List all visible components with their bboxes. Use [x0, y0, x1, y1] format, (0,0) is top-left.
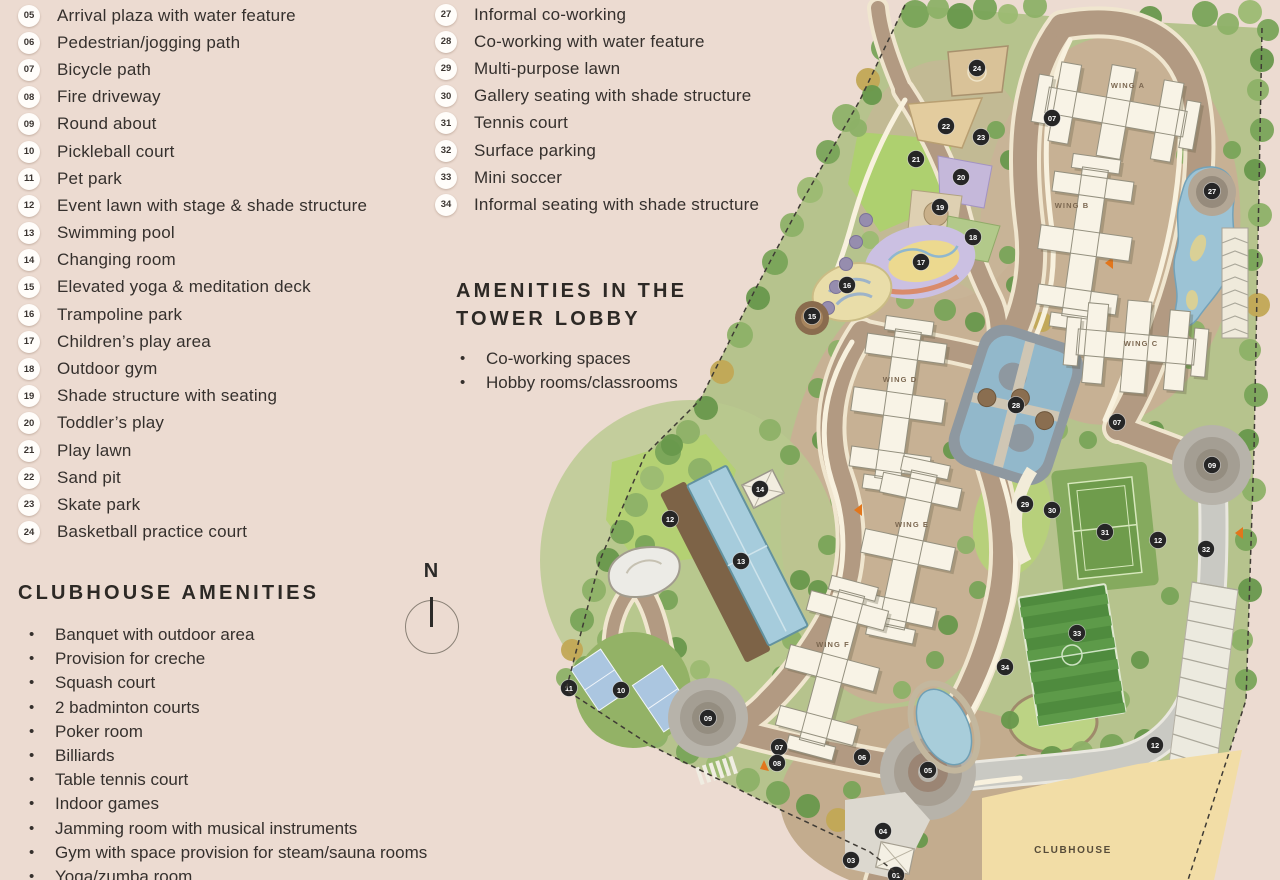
legend-number-badge: 16 [18, 304, 40, 326]
legend-item-label: Pickleball court [57, 142, 175, 162]
legend-item-label: Informal seating with shade structure [474, 195, 759, 215]
legend-number-badge: 23 [18, 494, 40, 516]
tower-lobby-title-line1: AMENITIES IN THE [456, 280, 687, 302]
legend-item: 19Shade structure with seating [18, 383, 367, 410]
legend-item: 24Basketball practice court [18, 519, 367, 546]
map-marker: 07 [771, 739, 788, 756]
map-marker: 01 [888, 867, 905, 880]
map-marker: 12 [1150, 532, 1167, 549]
clubhouse-label: CLUBHOUSE [1034, 845, 1112, 856]
legend-number-badge: 19 [18, 385, 40, 407]
clubhouse-amenities-title: CLUBHOUSE AMENITIES [18, 580, 319, 608]
legend-item-label: Play lawn [57, 441, 132, 461]
map-marker-number: 28 [1012, 401, 1020, 410]
map-marker-number: 18 [969, 233, 977, 242]
map-marker-number: 12 [1154, 536, 1162, 545]
legend-item: 17Children’s play area [18, 328, 367, 355]
legend-secondary: 27Informal co-working28Co-working with w… [435, 1, 759, 219]
legend-item: 11Pet park [18, 165, 367, 192]
map-marker-number: 05 [924, 766, 932, 775]
map-marker-number: 22 [942, 122, 950, 131]
legend-item-label: Fire driveway [57, 87, 161, 107]
map-marker: 16 [839, 277, 856, 294]
legend-item: 12Event lawn with stage & shade structur… [18, 192, 367, 219]
map-marker: 24 [969, 60, 986, 77]
legend-item-label: Swimming pool [57, 223, 175, 243]
amenity-list-item: Yoga/zumba room [27, 865, 427, 880]
amenity-list-item: Co-working spaces [458, 347, 678, 371]
amenity-list-item: Gym with space provision for steam/sauna… [27, 841, 427, 865]
map-marker-number: 07 [1113, 418, 1121, 427]
legend-item-label: Outdoor gym [57, 359, 157, 379]
legend-number-badge: 32 [435, 140, 457, 162]
map-marker: 14 [752, 481, 769, 498]
legend-item-label: Toddler’s play [57, 413, 164, 433]
legend-item-label: Elevated yoga & meditation deck [57, 277, 311, 297]
legend-item-label: Sand pit [57, 468, 121, 488]
wing-label: WING D [883, 375, 918, 384]
legend-number-badge: 31 [435, 112, 457, 134]
map-marker: 28 [1008, 397, 1025, 414]
map-marker: 32 [1198, 541, 1215, 558]
map-marker: 04 [875, 823, 892, 840]
map-marker-number: 29 [1021, 500, 1029, 509]
map-marker-number: 13 [737, 557, 745, 566]
map-marker-number: 14 [756, 485, 765, 494]
legend-number-badge: 11 [18, 168, 40, 190]
map-marker: 10 [613, 682, 630, 699]
legend-item: 21Play lawn [18, 437, 367, 464]
map-marker-number: 34 [1001, 663, 1010, 672]
legend-item-label: Multi-purpose lawn [474, 59, 620, 79]
legend-primary: 05Arrival plaza with water feature06Pede… [18, 2, 367, 546]
legend-number-badge: 13 [18, 222, 40, 244]
map-marker: 13 [733, 553, 750, 570]
tower-lobby-list: Co-working spacesHobby rooms/classrooms [458, 347, 678, 395]
legend-item: 32Surface parking [435, 137, 759, 164]
map-marker: 11 [561, 680, 578, 697]
legend-number-badge: 17 [18, 331, 40, 353]
amenity-list-item: Jamming room with musical instruments [27, 817, 427, 841]
legend-item-label: Tennis court [474, 113, 568, 133]
legend-item-label: Event lawn with stage & shade structure [57, 196, 367, 216]
site-plan-page: CLUBHOUSE WING AWING BWING CWING DWING E… [0, 0, 1280, 880]
legend-item: 07Bicycle path [18, 56, 367, 83]
legend-number-badge: 06 [18, 32, 40, 54]
map-marker: 09 [1204, 457, 1221, 474]
legend-item-label: Arrival plaza with water feature [57, 6, 296, 26]
legend-number-badge: 18 [18, 358, 40, 380]
map-marker-number: 10 [617, 686, 625, 695]
map-marker-number: 30 [1048, 506, 1056, 515]
map-marker: 09 [700, 710, 717, 727]
legend-item-label: Co-working with water feature [474, 32, 705, 52]
legend-item-label: Children’s play area [57, 332, 211, 352]
map-marker-number: 07 [775, 743, 783, 752]
legend-item: 22Sand pit [18, 464, 367, 491]
map-marker-number: 03 [847, 856, 855, 865]
legend-number-badge: 07 [18, 59, 40, 81]
legend-number-badge: 34 [435, 194, 457, 216]
map-marker: 23 [973, 129, 990, 146]
wing-label: WING F [816, 640, 850, 649]
legend-number-badge: 15 [18, 276, 40, 298]
legend-item: 06Pedestrian/jogging path [18, 29, 367, 56]
map-marker-number: 06 [858, 753, 866, 762]
map-marker: 07 [1044, 110, 1061, 127]
legend-item: 30Gallery seating with shade structure [435, 83, 759, 110]
map-marker-number: 24 [973, 64, 982, 73]
map-marker: 08 [769, 755, 786, 772]
map-marker: 12 [1147, 737, 1164, 754]
legend-number-badge: 09 [18, 113, 40, 135]
amenity-list-item: Hobby rooms/classrooms [458, 371, 678, 395]
map-marker-number: 12 [666, 515, 674, 524]
map-marker: 29 [1017, 496, 1034, 513]
legend-item: 34Informal seating with shade structure [435, 191, 759, 218]
legend-item: 14Changing room [18, 247, 367, 274]
legend-item: 23Skate park [18, 491, 367, 518]
legend-item-label: Gallery seating with shade structure [474, 86, 751, 106]
legend-item-label: Mini soccer [474, 168, 562, 188]
amenity-list-item: Poker room [27, 720, 427, 744]
map-marker-number: 31 [1101, 528, 1109, 537]
legend-item: 31Tennis court [435, 110, 759, 137]
legend-item: 13Swimming pool [18, 220, 367, 247]
legend-item-label: Skate park [57, 495, 140, 515]
legend-item-label: Pet park [57, 169, 122, 189]
legend-item-label: Surface parking [474, 141, 596, 161]
map-marker: 17 [913, 254, 930, 271]
legend-item: 09Round about [18, 111, 367, 138]
amenity-list-item: Banquet with outdoor area [27, 623, 427, 647]
legend-number-badge: 29 [435, 58, 457, 80]
map-marker: 21 [908, 151, 925, 168]
legend-item: 05Arrival plaza with water feature [18, 2, 367, 29]
legend-item: 16Trampoline park [18, 301, 367, 328]
map-marker: 31 [1097, 524, 1114, 541]
legend-number-badge: 33 [435, 167, 457, 189]
map-marker: 27 [1204, 183, 1221, 200]
map-marker-number: 23 [977, 133, 985, 142]
legend-item-label: Pedestrian/jogging path [57, 33, 240, 53]
mini-soccer-field [1018, 584, 1125, 726]
map-marker-number: 09 [1208, 461, 1216, 470]
map-marker: 03 [843, 852, 860, 869]
map-marker-number: 16 [843, 281, 851, 290]
map-marker-number: 12 [1151, 741, 1159, 750]
wing-label: WING C [1124, 339, 1159, 348]
map-marker-number: 27 [1208, 187, 1216, 196]
map-marker-number: 17 [917, 258, 925, 267]
wing-label: WING E [895, 520, 929, 529]
legend-item: 28Co-working with water feature [435, 28, 759, 55]
legend-number-badge: 27 [435, 4, 457, 26]
map-marker: 18 [965, 229, 982, 246]
legend-item: 08Fire driveway [18, 84, 367, 111]
wing-label: WING A [1111, 81, 1145, 90]
amenity-list-item: Indoor games [27, 792, 427, 816]
map-marker-number: 33 [1073, 629, 1081, 638]
legend-item-label: Basketball practice court [57, 522, 247, 542]
legend-item: 29Multi-purpose lawn [435, 55, 759, 82]
amenity-list-item: 2 badminton courts [27, 696, 427, 720]
legend-item: 27Informal co-working [435, 1, 759, 28]
amenity-list-item: Provision for creche [27, 647, 427, 671]
legend-item: 33Mini soccer [435, 164, 759, 191]
map-marker: 07 [1109, 414, 1126, 431]
wing-label: WING B [1055, 201, 1090, 210]
map-marker-number: 08 [773, 759, 781, 768]
map-marker-number: 04 [879, 827, 888, 836]
legend-number-badge: 14 [18, 249, 40, 271]
map-marker: 19 [932, 199, 949, 216]
legend-number-badge: 10 [18, 141, 40, 163]
legend-number-badge: 05 [18, 5, 40, 27]
legend-number-badge: 28 [435, 31, 457, 53]
map-marker-number: 21 [912, 155, 920, 164]
map-marker-number: 32 [1202, 545, 1210, 554]
legend-number-badge: 24 [18, 521, 40, 543]
legend-number-badge: 08 [18, 86, 40, 108]
map-marker: 30 [1044, 502, 1061, 519]
legend-number-badge: 30 [435, 85, 457, 107]
map-marker: 22 [938, 118, 955, 135]
tower-lobby-title: AMENITIES IN THE TOWER LOBBY [456, 278, 687, 333]
map-marker: 05 [920, 762, 937, 779]
map-marker-number: 09 [704, 714, 712, 723]
map-marker: 15 [804, 308, 821, 325]
legend-number-badge: 21 [18, 440, 40, 462]
legend-item-label: Changing room [57, 250, 176, 270]
legend-item-label: Shade structure with seating [57, 386, 277, 406]
amenity-list-item: Table tennis court [27, 768, 427, 792]
amenity-list-item: Squash court [27, 671, 427, 695]
tower-lobby-title-line2: TOWER LOBBY [456, 308, 641, 330]
map-marker: 06 [854, 749, 871, 766]
map-marker: 20 [953, 169, 970, 186]
map-marker: 12 [662, 511, 679, 528]
legend-number-badge: 20 [18, 412, 40, 434]
map-marker-number: 07 [1048, 114, 1056, 123]
legend-item: 15Elevated yoga & meditation deck [18, 274, 367, 301]
legend-item-label: Trampoline park [57, 305, 182, 325]
legend-item-label: Round about [57, 114, 157, 134]
legend-item: 18Outdoor gym [18, 355, 367, 382]
legend-item: 10Pickleball court [18, 138, 367, 165]
amenity-list-item: Billiards [27, 744, 427, 768]
map-marker-number: 20 [957, 173, 965, 182]
compass-needle-icon [430, 597, 433, 627]
map-marker: 33 [1069, 625, 1086, 642]
legend-number-badge: 22 [18, 467, 40, 489]
map-marker-number: 15 [808, 312, 816, 321]
map-marker-number: 19 [936, 203, 944, 212]
legend-number-badge: 12 [18, 195, 40, 217]
map-marker: 34 [997, 659, 1014, 676]
legend-item-label: Informal co-working [474, 5, 626, 25]
clubhouse-amenities-list: Banquet with outdoor areaProvision for c… [27, 623, 427, 880]
north-label: N [408, 560, 454, 583]
legend-item-label: Bicycle path [57, 60, 151, 80]
legend-item: 20Toddler’s play [18, 410, 367, 437]
